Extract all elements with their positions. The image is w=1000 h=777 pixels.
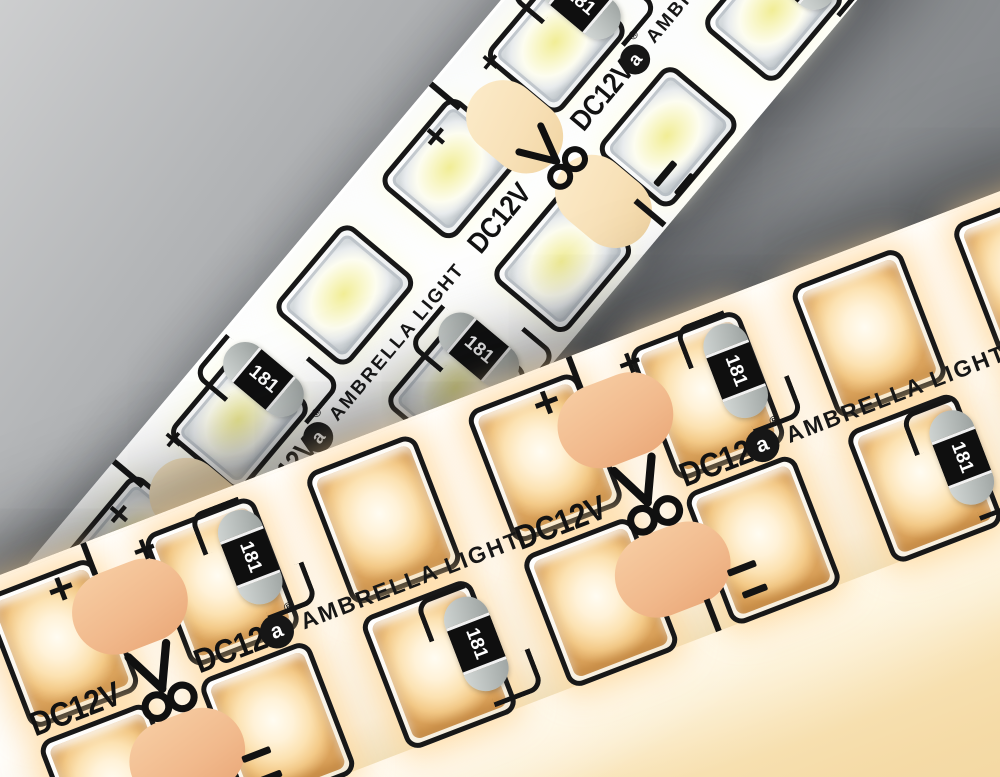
resistor-code: 181	[460, 625, 492, 662]
resistor-code: 181	[946, 439, 978, 476]
resistor-code: 181	[720, 352, 752, 389]
resistor-code: 181	[234, 538, 266, 575]
led-strip-product-photo: DC12VDC12V++DC12VDC12V++181181181181a®AM…	[0, 0, 1000, 777]
